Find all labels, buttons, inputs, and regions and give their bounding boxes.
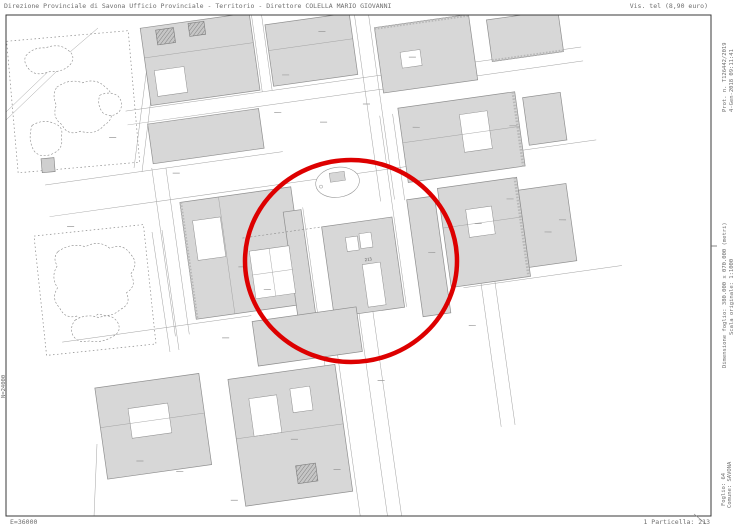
stamp-scale: Scala originale: 1:1000 [729, 259, 735, 335]
stamp-foglio: Foglio: 64 [721, 473, 727, 506]
hatched-building [188, 21, 206, 36]
building [265, 13, 358, 86]
hatched-building [156, 28, 176, 45]
grid-label-north: N=24000 [1, 375, 7, 398]
grid-label-east: E=36000 [10, 518, 37, 526]
building [523, 92, 567, 145]
building [398, 92, 525, 183]
stamp-protocol: Prot. n. T126442/2019 [722, 42, 728, 112]
stamp-datetime: 4-Gen-2018 09:11:41 [729, 49, 735, 112]
cadastral-map-canvas: 213 [0, 0, 737, 532]
building [374, 14, 477, 93]
stamp-comune: Comune: SAVONA [727, 462, 733, 508]
building [518, 183, 576, 267]
hatched-building [296, 463, 318, 484]
stamp-sheet-size: Dimensione foglio: 380.000 x 070.000 (me… [722, 222, 728, 368]
building [228, 364, 353, 506]
cadastral-extract-page: Direzione Provinciale di Savona Ufficio … [0, 0, 737, 532]
parcel-count-label: 1 Particella: 213 [610, 518, 710, 526]
